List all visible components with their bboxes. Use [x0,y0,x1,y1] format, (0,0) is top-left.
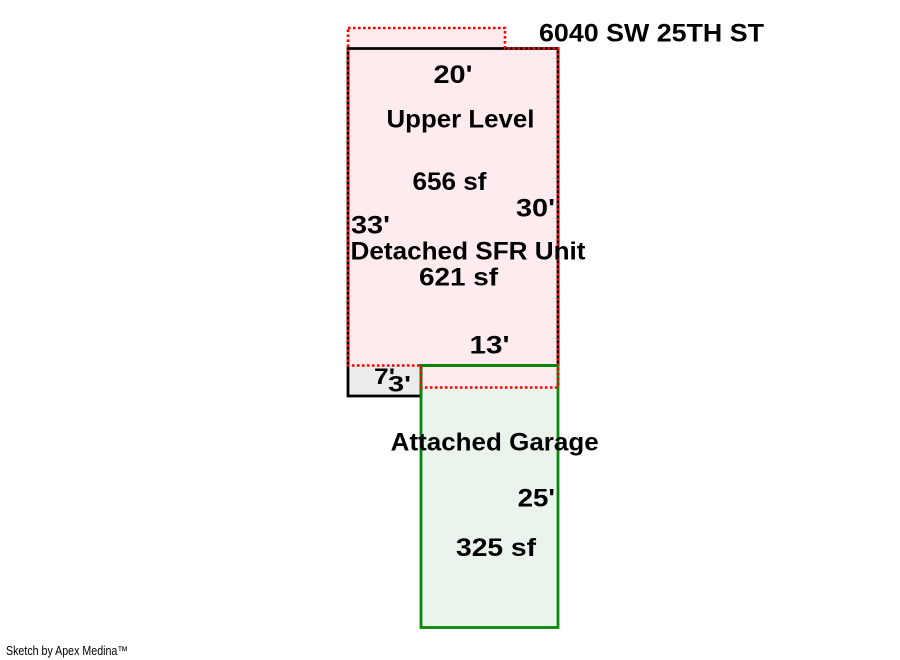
svg-text:6040 SW 25TH ST: 6040 SW 25TH ST [539,20,764,48]
svg-text:25': 25' [518,485,555,513]
svg-text:621 sf: 621 sf [419,264,499,292]
svg-text:Attached Garage: Attached Garage [391,429,599,457]
svg-text:656 sf: 656 sf [413,168,488,196]
svg-text:Upper Level: Upper Level [387,106,535,134]
svg-text:325 sf: 325 sf [456,534,537,562]
svg-text:30': 30' [516,195,555,223]
svg-text:3': 3' [388,372,411,397]
svg-text:13': 13' [470,332,510,360]
svg-text:Detached SFR Unit: Detached SFR Unit [351,238,587,266]
svg-text:20': 20' [434,61,473,89]
svg-text:Sketch by Apex Medina™: Sketch by Apex Medina™ [6,644,128,658]
svg-text:33': 33' [351,212,390,240]
